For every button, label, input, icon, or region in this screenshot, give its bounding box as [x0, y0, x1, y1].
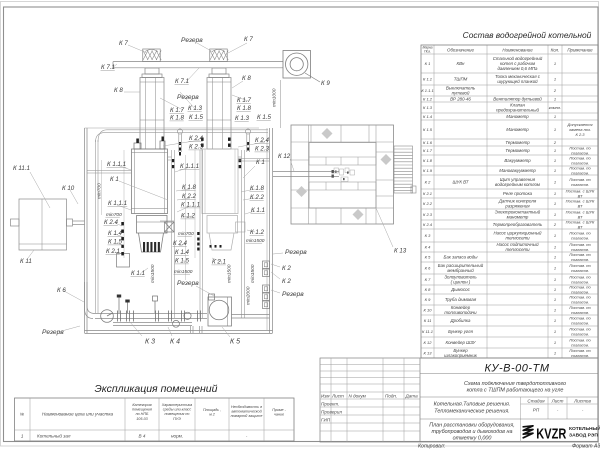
svg-text:согласов.: согласов. — [571, 331, 589, 336]
svg-text:К 10: К 10 — [62, 185, 75, 192]
svg-text:min700: min700 — [97, 183, 103, 199]
svg-text:К 1.7: К 1.7 — [237, 97, 252, 104]
svg-text:К 11.1: К 11.1 — [13, 165, 30, 172]
svg-text:2: 2 — [553, 88, 557, 93]
svg-text:КОТЕЛЬНЫЙ: КОТЕЛЬНЫЙ — [569, 424, 600, 432]
svg-text:компл.: компл. — [549, 105, 561, 110]
svg-text:Категория: Категория — [132, 403, 151, 407]
svg-text:Наименование: Наименование — [502, 47, 533, 52]
svg-text:min1500: min1500 — [227, 264, 233, 283]
svg-text:К 1.1.1: К 1.1.1 — [421, 88, 433, 93]
svg-text:помещения по: помещения по — [164, 412, 189, 416]
svg-text:Бак запаса воды: Бак запаса воды — [444, 255, 479, 260]
svg-text:К 7: К 7 — [425, 277, 431, 282]
svg-text:ШУК ВТ: ШУК ВТ — [453, 180, 469, 185]
svg-text:согласов.: согласов. — [571, 257, 589, 262]
svg-text:Труба дымовая: Труба дымовая — [445, 297, 477, 302]
svg-text:К 7.1: К 7.1 — [175, 78, 189, 85]
svg-text:1: 1 — [554, 191, 556, 196]
svg-text:К 1.1: К 1.1 — [423, 77, 432, 82]
svg-text:К 2.4: К 2.4 — [104, 219, 119, 226]
svg-text:1: 1 — [554, 158, 556, 163]
svg-text:К 1.2: К 1.2 — [181, 213, 196, 220]
svg-text:К 1.1.1: К 1.1.1 — [181, 202, 200, 209]
svg-text:согласов.: согласов. — [571, 320, 589, 325]
svg-text:К 2: К 2 — [282, 265, 291, 272]
svg-text:Наименование цеха или участка: Наименование цеха или участка — [42, 412, 114, 417]
svg-text:К 6: К 6 — [57, 287, 66, 294]
svg-text:К 2.3: К 2.3 — [189, 144, 204, 151]
svg-text:К 5: К 5 — [230, 339, 240, 346]
svg-text:согласов.: согласов. — [571, 299, 589, 304]
svg-text:1: 1 — [554, 340, 556, 345]
svg-text:К 2.2: К 2.2 — [250, 194, 265, 201]
svg-text:К 1.3: К 1.3 — [235, 115, 250, 122]
svg-text:1: 1 — [554, 245, 556, 250]
svg-text:Резерв: Резерв — [285, 249, 307, 256]
svg-text:К 2.3: К 2.3 — [255, 146, 270, 153]
svg-text:водогрейным котлом: водогрейным котлом — [495, 182, 540, 187]
svg-text:К 11: К 11 — [424, 318, 432, 323]
svg-text:К 1.1.1: К 1.1.1 — [108, 200, 127, 207]
svg-text:Термометр: Термометр — [505, 140, 530, 145]
svg-text:Резерв: Резерв — [282, 291, 304, 298]
svg-text:К 1: К 1 — [256, 159, 265, 166]
svg-text:К 1.5: К 1.5 — [257, 114, 272, 121]
svg-text:К 2.4: К 2.4 — [423, 222, 433, 227]
svg-text:Тепломеханические решения.: Тепломеханические решения. — [434, 409, 509, 415]
svg-text:К 1.8: К 1.8 — [237, 105, 252, 112]
svg-text:min1000: min1000 — [272, 88, 278, 107]
svg-text:К 1.3: К 1.3 — [423, 105, 433, 110]
svg-text:Дата: Дата — [405, 394, 419, 399]
svg-text:путевой: путевой — [452, 90, 470, 95]
svg-text:чание: чание — [274, 413, 284, 417]
svg-text:Характеристика: Характеристика — [161, 403, 192, 407]
svg-text:К 1.5: К 1.5 — [175, 258, 190, 265]
svg-text:К 7: К 7 — [244, 36, 253, 43]
svg-text:отметку 0,000: отметку 0,000 — [453, 436, 492, 442]
svg-text:К 12: К 12 — [424, 340, 433, 345]
svg-text:ВР 280-46: ВР 280-46 — [450, 97, 471, 102]
svg-text:ГИП: ГИП — [321, 418, 331, 423]
svg-text:Дымосос: Дымосос — [450, 287, 470, 292]
svg-text:К 2: К 2 — [425, 180, 431, 185]
svg-text:Манометр: Манометр — [506, 127, 529, 132]
svg-text:1: 1 — [554, 329, 556, 334]
svg-text:Листов: Листов — [573, 399, 591, 404]
svg-text:Конвейер ШЗУ: Конвейер ШЗУ — [446, 340, 477, 345]
svg-text:Резерв: Резерв — [181, 37, 203, 44]
svg-text:К 1.4: К 1.4 — [423, 114, 433, 119]
svg-text:Вентилятор дутьевой: Вентилятор дутьевой — [493, 97, 542, 102]
svg-text:КВн: КВн — [457, 61, 466, 66]
svg-text:1: 1 — [554, 180, 556, 185]
svg-text:К 1.8: К 1.8 — [250, 185, 265, 192]
svg-text:К 1.2: К 1.2 — [423, 97, 433, 102]
svg-text:1: 1 — [21, 434, 24, 439]
svg-text:ЗАВОД РЭП: ЗАВОД РЭП — [569, 433, 598, 439]
svg-text:-: - — [557, 408, 559, 413]
svg-text:1: 1 — [554, 277, 556, 282]
svg-text:предохранительный: предохранительный — [496, 107, 539, 112]
svg-text:РП: РП — [533, 408, 540, 413]
svg-text:согласов.: согласов. — [571, 170, 589, 175]
svg-text:1: 1 — [554, 77, 556, 82]
svg-text:Площадь ,: Площадь , — [203, 408, 221, 412]
svg-text:помещения: помещения — [132, 408, 152, 412]
svg-text:К 1.1.1: К 1.1.1 — [180, 163, 199, 170]
svg-text:К 10: К 10 — [424, 308, 433, 313]
svg-text:К 2.1: К 2.1 — [423, 191, 432, 196]
svg-text:К 2: К 2 — [282, 278, 291, 285]
svg-text:Изм: Изм — [321, 394, 330, 399]
svg-text:согласов.: согласов. — [571, 235, 589, 240]
svg-text:ВТ: ВТ — [578, 224, 583, 229]
svg-text:автоматической: автоматической — [231, 410, 261, 414]
svg-text:К 2.2: К 2.2 — [182, 193, 197, 200]
svg-text:Формат А3: Формат А3 — [572, 444, 600, 450]
svg-text:К 1.4: К 1.4 — [108, 230, 123, 237]
svg-text:котла с ТШПМ работающего на уг: котла с ТШПМ работающего на угле — [467, 388, 564, 394]
svg-text:Состав водогрейной котельной: Состав водогрейной котельной — [463, 30, 592, 40]
svg-text:ПУЭ: ПУЭ — [173, 417, 181, 421]
svg-text:1: 1 — [554, 297, 556, 302]
svg-text:трубопроводов и дымоходов на: трубопроводов и дымоходов на — [432, 429, 513, 435]
svg-text:1: 1 — [554, 308, 556, 313]
svg-text:К 2.3: К 2.3 — [423, 212, 433, 217]
svg-text:1: 1 — [554, 148, 556, 153]
svg-text:Проверил: Проверил — [321, 410, 342, 415]
svg-text:К 6: К 6 — [425, 266, 431, 271]
svg-text:К 9: К 9 — [321, 80, 330, 87]
svg-text:105-03: 105-03 — [136, 417, 148, 421]
svg-text:Резерв: Резерв — [42, 329, 64, 336]
svg-text:по НПБ: по НПБ — [136, 412, 149, 416]
svg-text:давлением 0,6 МПа: давлением 0,6 МПа — [497, 66, 538, 71]
svg-text:К 13: К 13 — [424, 351, 433, 356]
svg-text:-: - — [582, 408, 584, 413]
svg-text:2: 2 — [553, 222, 557, 227]
svg-text:Вакуумметр: Вакуумметр — [504, 158, 531, 163]
svg-text:согласов.: согласов. — [571, 342, 589, 347]
svg-text:теплосети: теплосети — [505, 235, 530, 240]
svg-text:К 1: К 1 — [425, 61, 431, 66]
svg-text:К 11.1: К 11.1 — [422, 329, 433, 334]
svg-text:N докум: N докум — [349, 394, 367, 399]
svg-text:Котельная.Типовые решения.: Котельная.Типовые решения. — [434, 402, 511, 408]
svg-text:Копировал:: Копировал: — [418, 444, 446, 450]
svg-text:К 8: К 8 — [425, 287, 431, 292]
svg-text:К 1.8: К 1.8 — [423, 158, 433, 163]
svg-text:К 2.3: К 2.3 — [575, 132, 585, 137]
svg-text:шлакоприемник: шлакоприемник — [444, 353, 478, 358]
svg-text:1: 1 — [554, 287, 556, 292]
svg-text:К 13: К 13 — [394, 248, 407, 255]
svg-text:Термопреобразователь: Термопреобразователь — [493, 222, 543, 227]
svg-text:норм.: норм. — [171, 434, 183, 439]
svg-text:Примечание: Примечание — [567, 47, 593, 52]
svg-text:Резерв: Резерв — [177, 280, 199, 287]
svg-text:Термометр: Термометр — [505, 148, 530, 153]
svg-text:К 7.1: К 7.1 — [101, 64, 115, 71]
svg-text:К 5: К 5 — [425, 255, 431, 260]
svg-text:К 7: К 7 — [119, 40, 128, 47]
svg-text:1: 1 — [554, 168, 556, 173]
svg-text:Бункер угля: Бункер угля — [448, 329, 473, 334]
svg-text:согласов.: согласов. — [571, 268, 589, 273]
svg-text:1: 1 — [554, 233, 556, 238]
svg-text:-: - — [246, 434, 248, 439]
svg-text:К 1.2: К 1.2 — [250, 229, 265, 236]
svg-text:К 1.3: К 1.3 — [188, 105, 203, 112]
svg-text:К 1.4: К 1.4 — [175, 249, 190, 256]
svg-text:Лист: Лист — [551, 399, 564, 404]
svg-text:1: 1 — [554, 351, 556, 356]
svg-text:К 1.9: К 1.9 — [423, 168, 433, 173]
svg-text:1: 1 — [554, 212, 556, 217]
svg-text:1: 1 — [554, 266, 556, 271]
svg-text:К 1.5: К 1.5 — [423, 127, 433, 132]
svg-text:К 12: К 12 — [278, 153, 291, 160]
svg-text:К 1.1: К 1.1 — [251, 207, 265, 214]
svg-text:КУ-В-00-ТМ: КУ-В-00-ТМ — [484, 363, 549, 375]
svg-text:1: 1 — [554, 255, 556, 260]
svg-text:План расстановки оборудования,: План расстановки оборудования, — [429, 423, 515, 429]
svg-text:Стадия: Стадия — [527, 399, 545, 404]
svg-text:К 1.5: К 1.5 — [189, 114, 204, 121]
svg-text:шурующей планкой: шурующей планкой — [497, 79, 538, 84]
svg-text:среды или класс: среды или класс — [163, 408, 192, 412]
svg-text:Лист: Лист — [331, 394, 344, 399]
svg-text:Резерв: Резерв — [177, 94, 199, 101]
svg-text:согласов.: согласов. — [571, 182, 589, 187]
svg-text:№: № — [20, 412, 25, 417]
svg-text:min2000: min2000 — [246, 286, 252, 305]
svg-text:К 8: К 8 — [242, 75, 251, 82]
svg-text:согласов.: согласов. — [571, 353, 589, 358]
svg-text:К 1.7: К 1.7 — [423, 148, 433, 153]
svg-text:Дробилка: Дробилка — [450, 318, 471, 323]
svg-text:разряжения: разряжения — [504, 203, 530, 208]
svg-text:Мановакуумметр: Мановакуумметр — [499, 168, 536, 173]
svg-text:К 2.4: К 2.4 — [173, 240, 188, 247]
svg-text:1: 1 — [554, 318, 556, 323]
svg-text:Поз.: Поз. — [424, 49, 431, 53]
svg-text:пожарной защите: пожарной защите — [231, 414, 263, 418]
svg-text:Кол.: Кол. — [551, 47, 560, 52]
svg-text:min1500: min1500 — [250, 264, 256, 283]
svg-text:К 1.8: К 1.8 — [182, 184, 197, 191]
svg-text:К 11: К 11 — [20, 258, 32, 265]
svg-text:м 2: м 2 — [209, 413, 215, 417]
svg-text:KVZR: KVZR — [536, 427, 566, 443]
svg-text:Схема подключения твердотоплив: Схема подключения твердотопливного — [464, 381, 566, 387]
svg-text:теплосети: теплосети — [505, 247, 530, 252]
svg-text:Котельный зал: Котельный зал — [37, 433, 71, 439]
svg-text:К 1.1: К 1.1 — [131, 270, 145, 277]
svg-text:Манометр: Манометр — [506, 114, 529, 119]
svg-text:К 3: К 3 — [145, 339, 155, 346]
svg-text:К 1.8: К 1.8 — [170, 115, 185, 122]
svg-text:К 1: К 1 — [110, 176, 119, 183]
svg-text:2: 2 — [553, 140, 557, 145]
svg-text:мембранный: мембранный — [447, 268, 474, 273]
svg-text:( циклон ): ( циклон ) — [451, 279, 471, 284]
svg-text:ВТ: ВТ — [578, 203, 583, 208]
svg-text:К 2.4: К 2.4 — [255, 137, 270, 144]
svg-text:ТШПМ: ТШПМ — [454, 77, 468, 82]
svg-text:Необходимость в: Необходимость в — [231, 405, 262, 409]
svg-text:К 1.6: К 1.6 — [423, 140, 433, 145]
svg-text:1: 1 — [554, 201, 556, 206]
svg-text:К 2.1: К 2.1 — [106, 248, 120, 255]
svg-text:min1500: min1500 — [150, 264, 156, 283]
svg-text:Обозначение: Обозначение — [447, 47, 474, 52]
svg-text:1: 1 — [554, 127, 556, 132]
svg-text:топливоподачи: топливоподачи — [444, 310, 477, 315]
svg-text:К 4: К 4 — [425, 245, 431, 250]
svg-text:1: 1 — [554, 97, 556, 102]
svg-text:К 2.1: К 2.1 — [212, 259, 226, 266]
svg-text:Приме -: Приме - — [272, 408, 286, 412]
svg-text:1: 1 — [554, 61, 556, 66]
svg-text:Проект.: Проект. — [321, 402, 339, 407]
svg-text:Экспликация помещений: Экспликация помещений — [95, 383, 218, 395]
svg-text:В 4: В 4 — [139, 434, 146, 439]
svg-text:манометр: манометр — [507, 214, 529, 219]
svg-text:К 4: К 4 — [170, 339, 180, 346]
svg-text:К 1.7: К 1.7 — [170, 107, 185, 114]
svg-text:К 1.1.1: К 1.1.1 — [107, 161, 126, 168]
svg-text:К 2.4: К 2.4 — [189, 135, 204, 142]
svg-text:Реле протока: Реле протока — [503, 191, 533, 196]
svg-text:1: 1 — [554, 114, 556, 119]
svg-text:К 2.2: К 2.2 — [423, 201, 433, 206]
svg-text:К 3: К 3 — [425, 233, 431, 238]
svg-text:К 9: К 9 — [425, 297, 431, 302]
svg-text:К 1.5: К 1.5 — [108, 239, 123, 246]
svg-text:Подп.: Подп. — [385, 394, 397, 399]
svg-text:согласов.: согласов. — [571, 310, 589, 315]
svg-text:К 8: К 8 — [114, 87, 123, 94]
